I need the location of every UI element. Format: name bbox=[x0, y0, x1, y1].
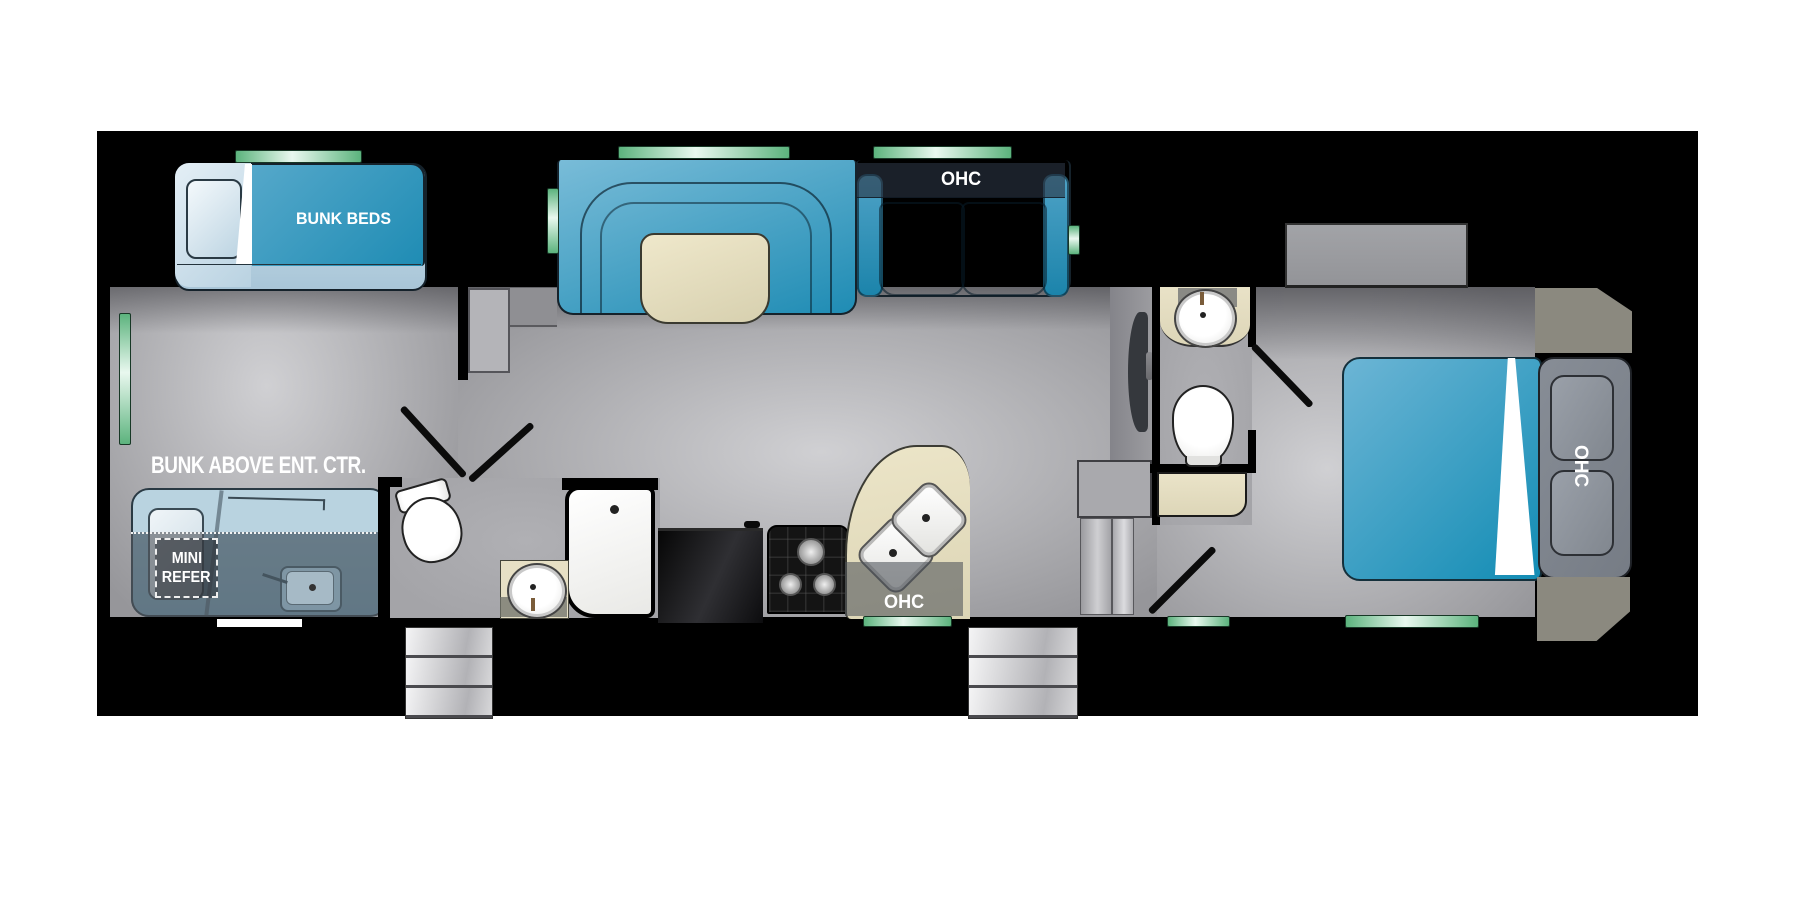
kitchen-ohc-label: OHC bbox=[884, 592, 924, 614]
window bbox=[1167, 616, 1230, 627]
outside-kitchen-sink-drain bbox=[309, 584, 316, 591]
dinette-table bbox=[640, 233, 770, 324]
step-tread bbox=[406, 688, 492, 718]
mini-refer-label-line1: MINI bbox=[171, 549, 201, 568]
exterior-hatch-marker bbox=[217, 619, 302, 627]
step-tread bbox=[969, 628, 1077, 658]
mid-bath-sink bbox=[509, 565, 565, 617]
window bbox=[119, 313, 131, 445]
step-tread bbox=[406, 658, 492, 688]
bedroom-dresser-slide bbox=[1285, 223, 1468, 288]
shower-drain bbox=[610, 505, 619, 514]
bunk-bed-pillow bbox=[186, 179, 242, 259]
mid-bath-wall-stub bbox=[378, 477, 402, 487]
window bbox=[618, 146, 790, 159]
bedroom-wardrobe bbox=[1157, 472, 1247, 517]
bunk-beds-label: BUNK BEDS bbox=[296, 209, 391, 229]
bunk-above-ent-ctr-label: BUNK ABOVE ENT. CTR. bbox=[151, 452, 366, 480]
window bbox=[873, 146, 1012, 159]
refrigerator-handle bbox=[744, 521, 760, 528]
entry-steps bbox=[968, 627, 1078, 719]
window bbox=[1068, 225, 1080, 255]
front-bath-faucet bbox=[1200, 292, 1204, 305]
bunk-bed-footer-band bbox=[177, 264, 421, 286]
top-wall-counter bbox=[510, 288, 557, 327]
window bbox=[1345, 615, 1479, 628]
step-tread bbox=[406, 628, 492, 658]
bunkroom-wall bbox=[458, 287, 468, 380]
window bbox=[863, 616, 952, 627]
front-bath-toilet bbox=[1172, 385, 1234, 463]
mini-refer-box: MINI REFER bbox=[155, 538, 218, 598]
entry-steps bbox=[405, 627, 493, 719]
window bbox=[235, 150, 362, 163]
kitchen-overhead-cabinet: OHC bbox=[845, 562, 963, 616]
kitchen-sink-drain bbox=[922, 514, 930, 522]
window bbox=[547, 188, 559, 254]
burner bbox=[779, 573, 802, 596]
step-tread bbox=[969, 688, 1077, 718]
sofa-overhead-cabinet: OHC bbox=[857, 163, 1065, 198]
floor-plan: BUNK BEDS BUNK ABOVE ENT. CTR. MINI REFE… bbox=[0, 0, 1800, 900]
tv bbox=[1128, 312, 1148, 432]
stair-step bbox=[1112, 518, 1134, 615]
stair-step bbox=[1080, 518, 1112, 615]
sofa-cushion bbox=[961, 202, 1047, 296]
stair-landing bbox=[1077, 460, 1152, 518]
front-bath-toilet-base bbox=[1185, 456, 1222, 467]
mid-bath-faucet bbox=[531, 598, 535, 611]
refrigerator bbox=[658, 528, 763, 623]
bunkroom-cabinet bbox=[468, 288, 510, 373]
front-bath-sink-drain bbox=[1200, 312, 1206, 318]
mid-bath-sink-drain bbox=[530, 584, 536, 590]
step-tread bbox=[969, 658, 1077, 688]
mini-refer-label-line2: REFER bbox=[162, 568, 211, 587]
front-bath-sink bbox=[1176, 291, 1235, 346]
burner bbox=[813, 573, 836, 596]
sofa-ohc-label: OHC bbox=[941, 169, 981, 191]
sofa-cushion bbox=[879, 202, 965, 296]
burner bbox=[797, 538, 825, 566]
bedroom-ohc-label: OHC bbox=[1569, 445, 1591, 481]
kitchen-sink-drain bbox=[889, 549, 897, 557]
